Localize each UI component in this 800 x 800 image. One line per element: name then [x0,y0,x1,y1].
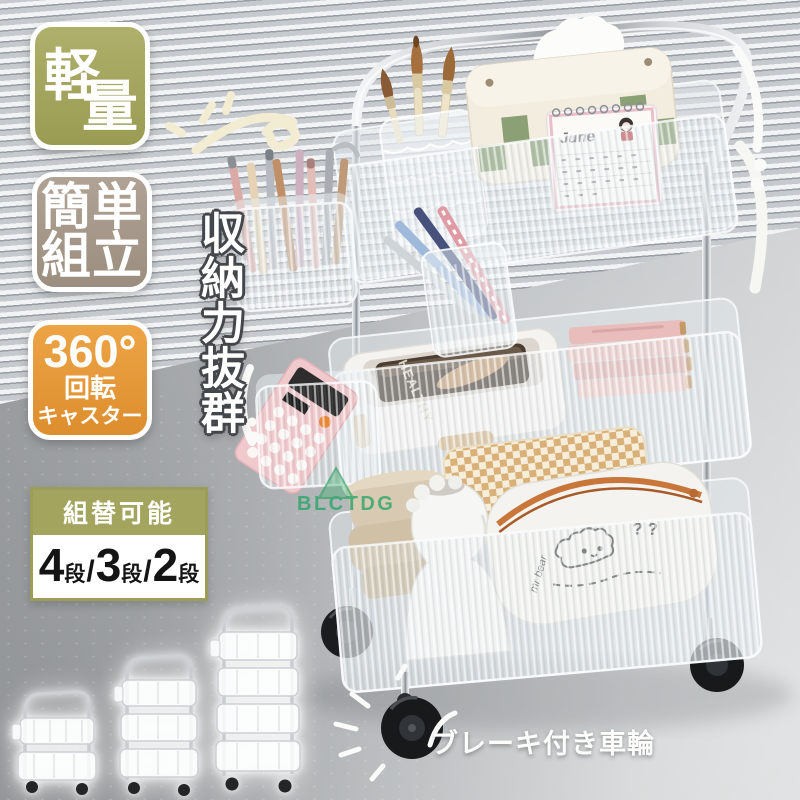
brake-wheel-caption: ブレーキ付き車輪 [431,722,655,761]
product-showcase: June [0,0,800,800]
variant-cart-3-tier [114,652,208,797]
tier-unit: 段 [178,558,199,588]
tier-separator: / [86,555,94,589]
badge-caster-label: キャスター [38,404,143,430]
watermark-text: BLCTDG [297,493,395,515]
cream-swoosh-doodle [169,95,295,150]
badge-lightweight: 軽 量 [30,22,150,150]
badge-easy-line2: 組立 [41,232,143,281]
storage-caption: 収納力抜群 [186,210,250,435]
badge-caster-rotate: 回転 [64,374,116,404]
badge-caster-degree: 360° [43,329,136,374]
tier-unit: 段 [121,558,142,588]
variant-cart-4-tier [209,602,311,794]
tier-count-2: 2 [153,542,179,588]
tier-count-3: 3 [96,542,122,588]
badge-360-caster: 360° 回転 キャスター [28,320,152,440]
badge-easy-line1: 簡単 [41,183,143,232]
variant-cart-2-tier [12,688,106,796]
tier-options-box: 組替可能 4 段 / 3 段 / 2 段 [30,487,208,601]
badge-easy-assembly: 簡単 組立 [32,172,152,292]
badge-lightweight-char2: 量 [82,62,138,143]
top-tier: June [320,0,739,284]
tier-options-values: 4 段 / 3 段 / 2 段 [33,535,205,598]
tier-unit: 段 [64,558,85,588]
tier-options-header: 組替可能 [33,490,205,535]
tier-count-4: 4 [39,542,65,588]
tier-separator: / [143,555,151,589]
